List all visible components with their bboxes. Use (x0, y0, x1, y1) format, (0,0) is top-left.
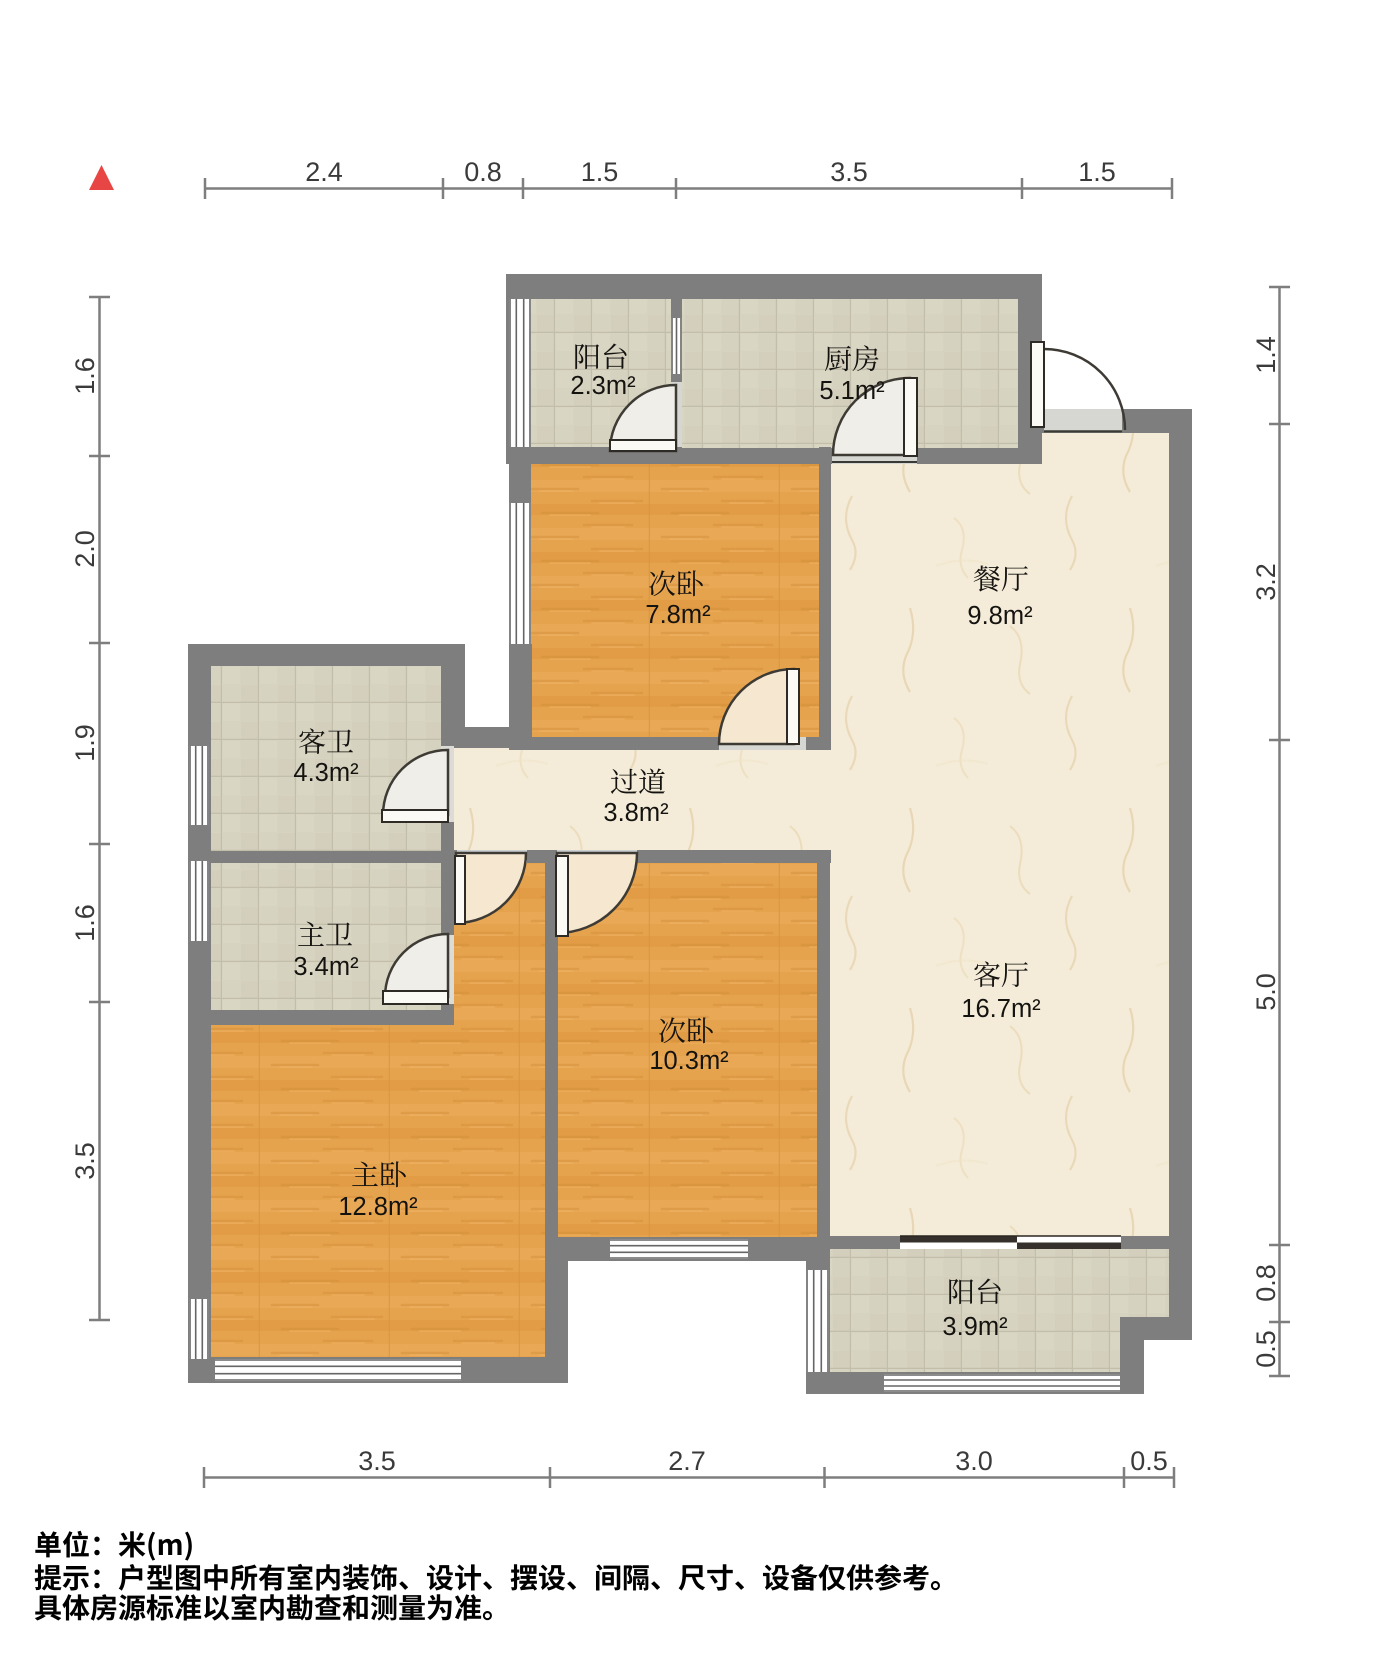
svg-text:2.4: 2.4 (305, 157, 343, 187)
svg-text:4.3m²: 4.3m² (293, 759, 358, 787)
svg-text:0.8: 0.8 (464, 157, 502, 187)
svg-text:1.5: 1.5 (581, 157, 619, 187)
svg-text:3.5: 3.5 (358, 1446, 396, 1476)
svg-text:3.4m²: 3.4m² (293, 953, 358, 981)
svg-text:3.9m²: 3.9m² (942, 1313, 1007, 1341)
svg-text:3.8m²: 3.8m² (603, 799, 668, 827)
svg-text:0.5: 0.5 (1130, 1446, 1168, 1476)
svg-text:1.9: 1.9 (70, 724, 100, 762)
svg-text:3.5: 3.5 (70, 1142, 100, 1180)
svg-text:1.6: 1.6 (70, 904, 100, 942)
svg-text:9.8m²: 9.8m² (967, 602, 1032, 630)
svg-text:3.2: 3.2 (1251, 563, 1281, 601)
svg-text:10.3m²: 10.3m² (649, 1047, 728, 1075)
svg-text:5.1m²: 5.1m² (819, 377, 884, 405)
svg-text:1.6: 1.6 (70, 357, 100, 395)
svg-text:7.8m²: 7.8m² (645, 601, 710, 629)
svg-text:2.7: 2.7 (668, 1446, 706, 1476)
svg-text:2.0: 2.0 (70, 530, 100, 568)
svg-text:0.8: 0.8 (1251, 1264, 1281, 1302)
svg-text:16.7m²: 16.7m² (961, 995, 1040, 1023)
svg-text:12.8m²: 12.8m² (338, 1193, 417, 1221)
svg-text:1.5: 1.5 (1078, 157, 1116, 187)
svg-text:5.0: 5.0 (1251, 973, 1281, 1011)
svg-text:3.5: 3.5 (830, 157, 868, 187)
svg-text:3.0: 3.0 (955, 1446, 993, 1476)
svg-text:1.4: 1.4 (1251, 336, 1281, 374)
svg-text:2.3m²: 2.3m² (570, 372, 635, 400)
svg-text:0.5: 0.5 (1251, 1330, 1281, 1368)
